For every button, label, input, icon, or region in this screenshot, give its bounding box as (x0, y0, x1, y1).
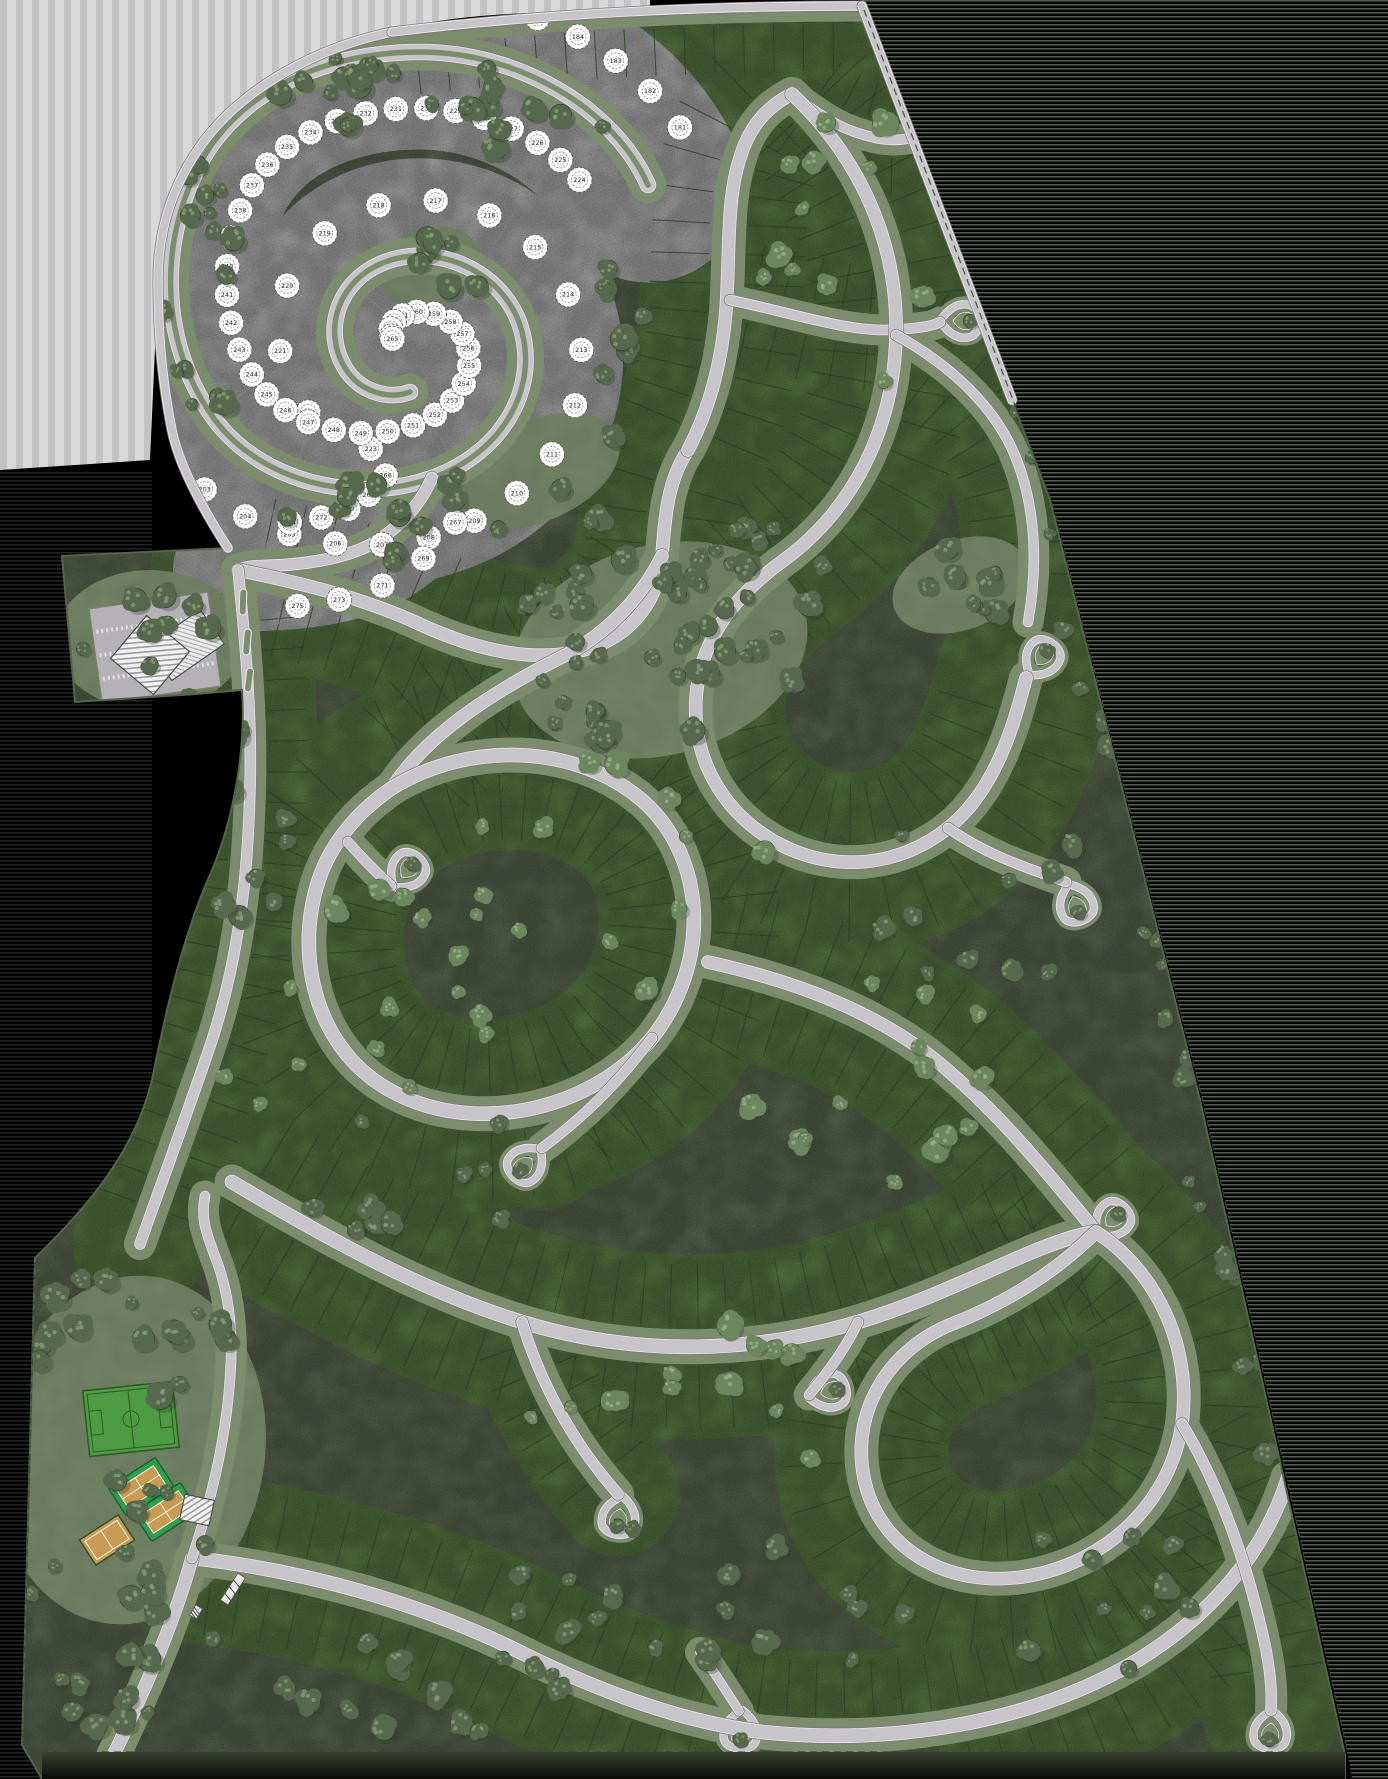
svg-text:271: 271 (376, 582, 388, 590)
platted-lot-tree: 273 (327, 587, 352, 612)
svg-text:210: 210 (511, 489, 523, 497)
platted-lot-tree: 225 (548, 147, 573, 172)
svg-text:254: 254 (457, 380, 469, 388)
svg-text:211: 211 (546, 450, 558, 458)
svg-text:242: 242 (225, 319, 237, 327)
svg-text:250: 250 (381, 428, 393, 436)
svg-text:209: 209 (468, 517, 480, 525)
svg-text:223: 223 (365, 445, 377, 453)
platted-lot-tree: 183 (603, 48, 628, 73)
svg-text:243: 243 (233, 346, 245, 354)
tree (279, 834, 298, 851)
svg-text:218: 218 (372, 201, 384, 209)
svg-text:248: 248 (328, 426, 340, 434)
master-plan-svg: 1811821831841851861871881891901911921931… (0, 0, 1388, 1779)
platted-lot-tree: 184 (565, 24, 590, 49)
svg-text:217: 217 (429, 197, 441, 205)
platted-lot-tree: 224 (567, 167, 592, 192)
svg-text:226: 226 (531, 139, 543, 147)
platted-lot-tree: 246 (273, 398, 298, 423)
platted-lot-tree: 212 (562, 393, 587, 418)
svg-text:212: 212 (569, 401, 581, 409)
svg-text:183: 183 (609, 57, 621, 65)
platted-lot-tree: 249 (348, 421, 373, 446)
svg-text:241: 241 (221, 291, 233, 299)
svg-text:182: 182 (644, 87, 656, 95)
platted-lot-tree: 269 (411, 546, 436, 571)
svg-text:214: 214 (562, 291, 574, 299)
svg-text:258: 258 (444, 318, 456, 326)
platted-lot-tree: 250 (375, 419, 400, 444)
svg-text:224: 224 (573, 176, 585, 184)
svg-text:184: 184 (572, 33, 584, 41)
svg-text:252: 252 (429, 411, 441, 419)
platted-lot-tree: 204 (233, 504, 258, 529)
svg-text:273: 273 (333, 596, 345, 604)
svg-text:219: 219 (319, 229, 331, 237)
platted-lot-tree: 234 (298, 120, 323, 145)
platted-lot-tree: 237 (240, 173, 265, 198)
platted-lot-tree: 275 (285, 593, 310, 618)
svg-text:215: 215 (529, 243, 541, 251)
platted-lot-tree: 218 (366, 193, 391, 218)
tree (426, 1681, 454, 1711)
svg-text:267: 267 (449, 519, 461, 527)
platted-lot-tree: 248 (321, 417, 346, 442)
platted-lot-tree: 213 (569, 337, 594, 362)
svg-text:216: 216 (483, 212, 495, 220)
platted-lot-tree: 265 (380, 326, 405, 351)
platted-lot-tree: 251 (401, 413, 426, 438)
svg-text:272: 272 (315, 514, 327, 522)
tree (798, 1133, 813, 1148)
svg-text:246: 246 (279, 406, 291, 414)
site-plan-map: 1811821831841851861871881891901911921931… (0, 0, 1388, 1779)
road-median-island (239, 589, 247, 615)
svg-text:247: 247 (302, 418, 314, 426)
svg-text:269: 269 (417, 555, 429, 563)
platted-lot-tree: 267 (443, 510, 468, 535)
svg-text:235: 235 (281, 143, 293, 151)
svg-text:232: 232 (359, 110, 371, 118)
svg-text:206: 206 (329, 540, 341, 548)
platted-lot-tree: 210 (504, 481, 529, 506)
svg-text:275: 275 (291, 602, 303, 610)
platted-lot-tree: 235 (275, 134, 300, 159)
svg-text:225: 225 (554, 156, 566, 164)
platted-lot-tree: 271 (370, 573, 395, 598)
tree (709, 543, 724, 558)
platted-lot-tree: 211 (539, 442, 564, 467)
platted-lot-tree: 220 (275, 273, 300, 298)
platted-lot-tree: 242 (219, 310, 244, 335)
tree (578, 752, 602, 775)
road-median-island (242, 629, 251, 656)
platted-lot-tree: 216 (477, 203, 502, 228)
platted-lot-tree: 231 (383, 97, 408, 122)
svg-text:234: 234 (304, 128, 316, 136)
platted-lot-tree: 236 (255, 152, 280, 177)
platted-lot-tree: 215 (523, 235, 548, 260)
svg-text:249: 249 (355, 429, 367, 437)
svg-text:231: 231 (390, 105, 402, 113)
svg-text:181: 181 (674, 124, 686, 132)
platted-lot-tree: 182 (638, 78, 663, 103)
platted-lot-tree: 247 (296, 410, 321, 435)
svg-text:245: 245 (260, 391, 272, 399)
svg-text:253: 253 (446, 397, 458, 405)
svg-text:244: 244 (246, 371, 258, 379)
tree (765, 1339, 784, 1360)
platted-lot-tree: 243 (227, 337, 252, 362)
platted-lot-tree: 181 (667, 115, 692, 140)
svg-text:236: 236 (261, 161, 273, 169)
platted-lot-tree: 217 (423, 188, 448, 213)
svg-text:255: 255 (463, 362, 475, 370)
tree (1041, 963, 1059, 981)
svg-text:220: 220 (281, 282, 293, 290)
svg-text:238: 238 (234, 206, 246, 214)
svg-text:265: 265 (386, 335, 398, 343)
svg-text:213: 213 (575, 346, 587, 354)
platted-lot-tree: 219 (312, 221, 337, 246)
platted-lot-tree: 226 (525, 130, 550, 155)
platted-lot-tree: 214 (556, 282, 581, 307)
svg-text:221: 221 (274, 347, 286, 355)
tree (470, 1723, 489, 1741)
svg-text:204: 204 (239, 512, 251, 520)
platted-lot-tree: 221 (268, 339, 293, 364)
platted-lot-tree: 238 (228, 198, 253, 223)
svg-text:251: 251 (407, 421, 419, 429)
platted-lot-tree: 206 (323, 531, 348, 556)
tree (1002, 873, 1018, 888)
svg-text:237: 237 (246, 181, 258, 189)
sports-building (180, 1494, 215, 1526)
